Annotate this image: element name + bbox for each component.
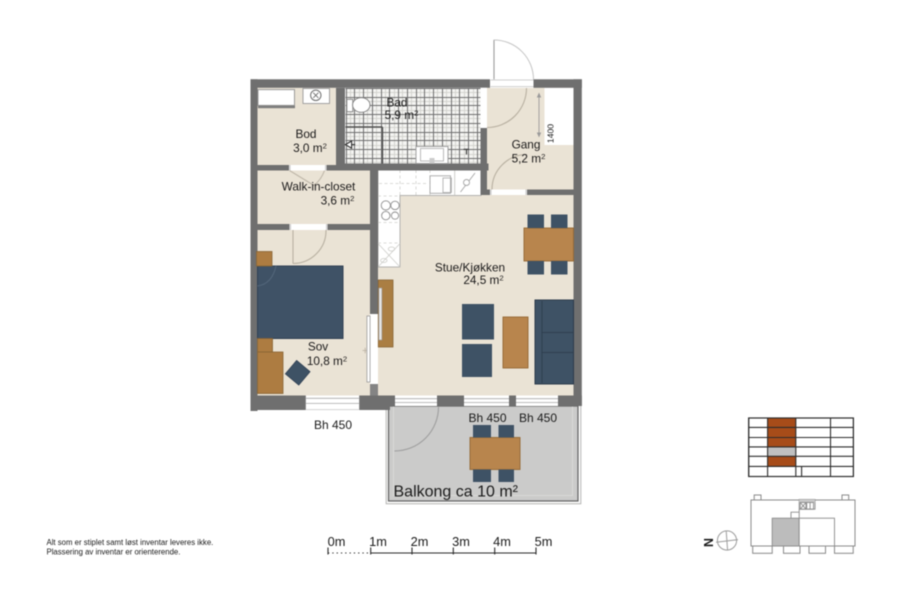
svg-text:5,9 m2: 5,9 m2 — [385, 108, 419, 122]
svg-text:5m: 5m — [535, 534, 553, 549]
svg-text:N: N — [701, 538, 715, 547]
svg-text:3m: 3m — [452, 534, 470, 549]
svg-text:Bh 450: Bh 450 — [519, 411, 557, 425]
svg-text:4m: 4m — [493, 534, 511, 549]
svg-text:3,0 m2: 3,0 m2 — [293, 141, 327, 155]
svg-text:Bh 450: Bh 450 — [314, 418, 352, 432]
svg-text:Plassering av inventar er orie: Plassering av inventar er orienterende. — [47, 548, 181, 557]
svg-text:Bod: Bod — [296, 127, 317, 141]
svg-text:Sov: Sov — [308, 340, 328, 354]
svg-text:10,8 m2: 10,8 m2 — [307, 354, 347, 368]
svg-text:Bh 450: Bh 450 — [468, 411, 506, 425]
svg-text:1400: 1400 — [546, 124, 556, 143]
svg-text:0m: 0m — [328, 534, 346, 549]
svg-text:Alt som er stiplet samt løst i: Alt som er stiplet samt løst inventar le… — [47, 538, 214, 547]
svg-text:5,2 m2: 5,2 m2 — [512, 152, 546, 166]
svg-text:Gang: Gang — [512, 138, 541, 152]
svg-text:Balkong ca 10 m²: Balkong ca 10 m² — [394, 484, 519, 501]
svg-text:2m: 2m — [411, 534, 429, 549]
svg-text:Walk-in-closet: Walk-in-closet — [282, 180, 356, 194]
svg-text:1m: 1m — [369, 534, 387, 549]
svg-text:3,6 m2: 3,6 m2 — [321, 194, 355, 208]
svg-text:24,5 m2: 24,5 m2 — [463, 273, 503, 287]
